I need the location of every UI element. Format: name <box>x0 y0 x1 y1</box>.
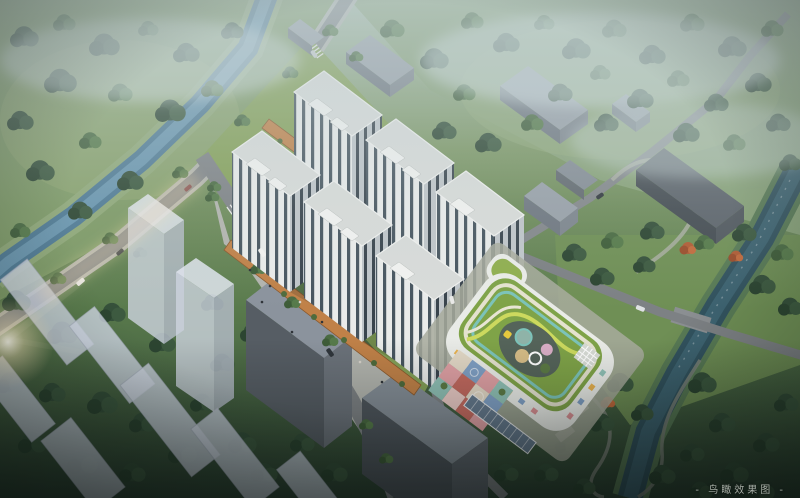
rendering-canvas <box>0 0 800 498</box>
caption-text: - 鸟瞰效果图 - <box>695 481 786 496</box>
bottom-shading <box>0 0 800 498</box>
aerial-rendering: - 鸟瞰效果图 - <box>0 0 800 498</box>
